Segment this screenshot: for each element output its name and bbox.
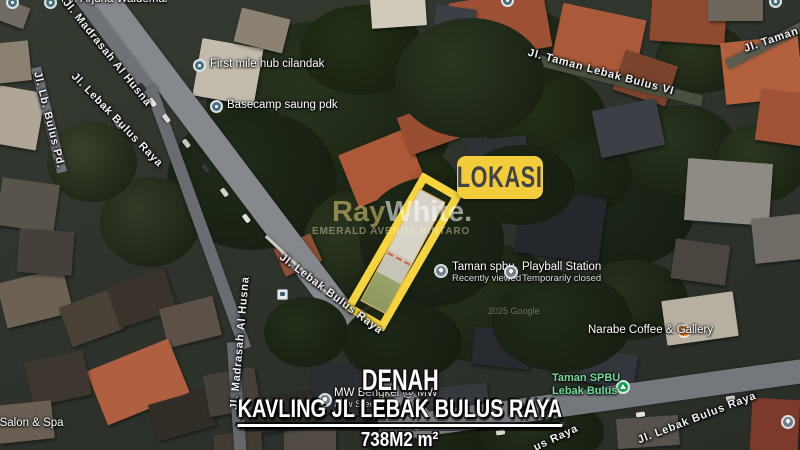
bus-stop-icon[interactable] — [277, 289, 288, 300]
map-attribution: 2025 Google — [488, 306, 540, 316]
map-pin-icon[interactable] — [193, 59, 206, 72]
road-label: Jl. Lebak Bulus Raya — [69, 70, 165, 169]
poi-label-text: Basecamp saung pdk — [227, 99, 338, 111]
caption: DENAH KAVLING JL LEBAK BULUS RAYA 738M2 … — [0, 366, 800, 450]
road-label: Jl. Taman Le — [742, 19, 800, 55]
poi-label: Playball StationTemporarily closed — [522, 261, 601, 284]
map-pin-icon[interactable] — [210, 100, 223, 113]
poi-label: PT. Arjuna Waldemar — [61, 0, 169, 5]
recent-pin-icon[interactable] — [504, 265, 518, 279]
road-label: Jl. Taman Lebak Bulus VI — [526, 47, 675, 98]
lokasi-badge-label: LOKASI — [457, 161, 543, 195]
poi-sublabel-text: Temporarily closed — [522, 273, 601, 284]
poi-label: First mile hub cilandak — [210, 58, 324, 70]
poi-label: Narabe Coffee & Gallery — [588, 324, 713, 336]
caption-kavling: KAVLING JL LEBAK BULUS RAYA — [0, 397, 800, 427]
satellite-map[interactable]: RayWhite. EMERALD AVENUE BINTARO PT. Arj… — [0, 0, 800, 450]
poi-label-text: Narabe Coffee & Gallery — [588, 324, 713, 336]
poi-label-text: PT. Arjuna Waldemar — [61, 0, 169, 5]
road-label: Jl. Lb. Bulus Pd. — [31, 70, 67, 169]
recent-pin-icon[interactable] — [434, 264, 448, 278]
poi-label: Basecamp saung pdk — [227, 99, 338, 111]
map-pin-icon[interactable] — [6, 0, 19, 9]
poi-label-text: First mile hub cilandak — [210, 58, 324, 70]
map-pin-icon[interactable] — [769, 0, 782, 8]
map-pin-icon[interactable] — [44, 0, 57, 9]
caption-area: 738M2 m² — [0, 430, 800, 450]
poi-label-text: Playball Station — [522, 261, 601, 273]
map-pin-icon[interactable] — [501, 0, 514, 7]
caption-denah: DENAH — [0, 366, 800, 396]
lokasi-badge: LOKASI — [457, 156, 543, 199]
road-label: Jl. Madrasah Al Husna — [60, 0, 154, 109]
road-label: Jl. Lebak Bulus Raya — [277, 251, 385, 336]
